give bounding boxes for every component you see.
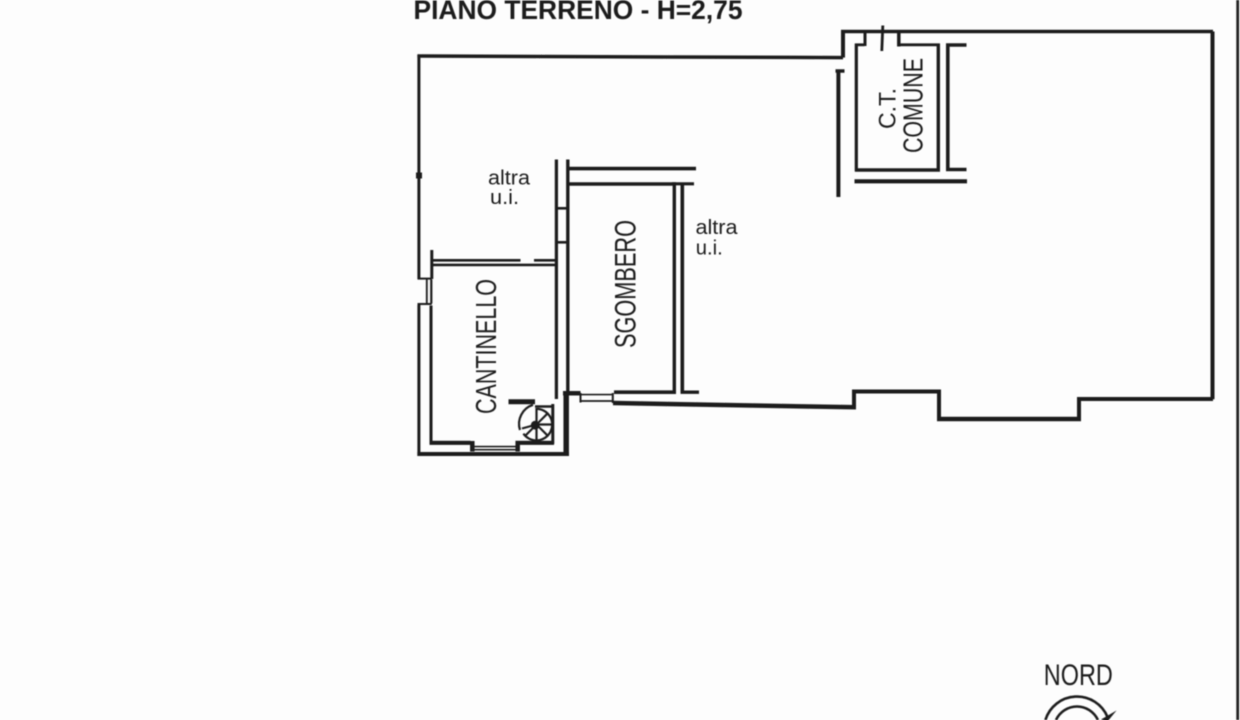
svg-text:PIANO TERRENO - H=2,75: PIANO TERRENO - H=2,75	[414, 0, 743, 25]
svg-text:u.i.: u.i.	[696, 238, 723, 260]
svg-text:u.i.: u.i.	[490, 187, 519, 209]
svg-text:altra: altra	[696, 217, 739, 239]
svg-text:CANTINELLO: CANTINELLO	[471, 279, 503, 414]
svg-text:NORD: NORD	[1044, 659, 1113, 692]
svg-text:SGOMBERO: SGOMBERO	[610, 220, 643, 348]
svg-text:COMUNE: COMUNE	[898, 58, 929, 153]
